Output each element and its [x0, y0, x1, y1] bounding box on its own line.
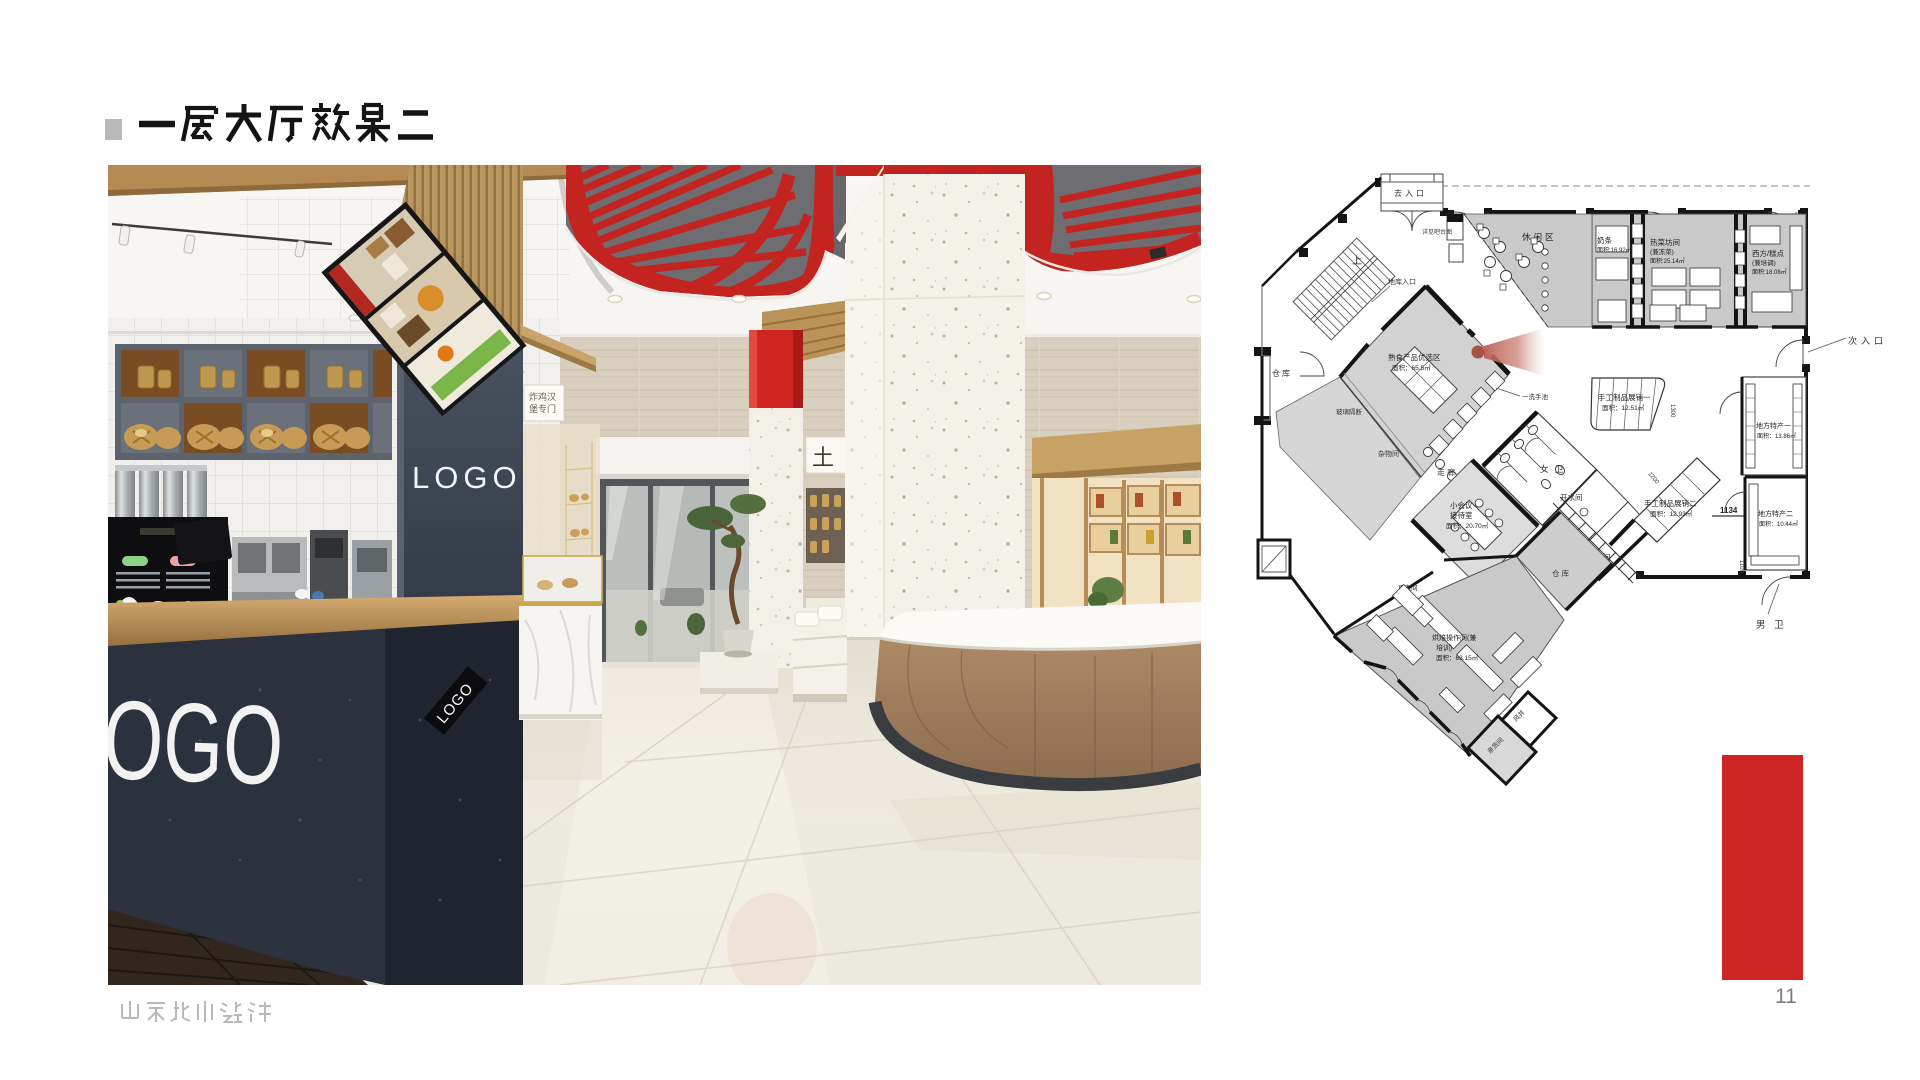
svg-text:OGO: OGO	[101, 677, 285, 808]
svg-text:土: 土	[812, 445, 834, 470]
svg-text:面积:18.08㎡: 面积:18.08㎡	[1752, 268, 1787, 276]
svg-text:次入口: 次入口	[1848, 335, 1887, 346]
svg-text:1300: 1300	[1669, 404, 1675, 418]
svg-text:1200: 1200	[1646, 471, 1660, 486]
svg-text:接待室: 接待室	[1450, 510, 1473, 520]
svg-text:面积：20.70㎡: 面积：20.70㎡	[1446, 521, 1489, 530]
svg-text:地方特产二: 地方特产二	[1758, 509, 1793, 518]
svg-text:炸鸡汉: 炸鸡汉	[529, 391, 556, 402]
svg-text:LOGO: LOGO	[412, 460, 522, 495]
svg-text:走廊: 走廊	[1437, 467, 1457, 477]
svg-text:上: 上	[1352, 255, 1362, 267]
svg-text:地库入口: 地库入口	[1388, 277, 1416, 286]
svg-text:熟食产品优选区: 熟食产品优选区	[1388, 352, 1441, 362]
svg-text:面积：12.93㎡: 面积：12.93㎡	[1650, 509, 1693, 518]
svg-text:玻璃隔断: 玻璃隔断	[1336, 407, 1363, 416]
svg-text:培训): 培训)	[1436, 643, 1452, 652]
svg-text:面积：12.51㎡: 面积：12.51㎡	[1602, 403, 1645, 412]
svg-text:(兼冻菜): (兼冻菜)	[1650, 247, 1674, 256]
svg-text:详见吧台图: 详见吧台图	[1422, 228, 1452, 236]
svg-text:西方/糕点: 西方/糕点	[1752, 248, 1785, 258]
svg-text:地方特产一: 地方特产一	[1756, 421, 1791, 430]
svg-text:面积：63.15㎡: 面积：63.15㎡	[1436, 653, 1479, 662]
svg-text:杂物间: 杂物间	[1378, 449, 1399, 458]
svg-text:奶条: 奶条	[1597, 235, 1613, 245]
svg-text:面积：13.86㎡: 面积：13.86㎡	[1757, 432, 1796, 440]
svg-text:堡专门: 堡专门	[529, 403, 556, 414]
svg-text:女 卫: 女 卫	[1540, 464, 1565, 474]
svg-text:面积:16.92㎡: 面积:16.92㎡	[1597, 246, 1632, 254]
svg-text:男 卫: 男 卫	[1756, 620, 1787, 631]
svg-text:1134: 1134	[1720, 506, 1738, 515]
svg-text:热菜坊间: 热菜坊间	[1650, 237, 1680, 247]
svg-text:(兼培调): (兼培调)	[1752, 258, 1776, 267]
svg-text:面积：65.5㎡: 面积：65.5㎡	[1392, 363, 1431, 372]
svg-text:仓库: 仓库	[1552, 568, 1571, 578]
svg-text:仓库: 仓库	[1272, 368, 1292, 378]
svg-text:小会议: 小会议	[1450, 500, 1473, 510]
svg-text:面积:25.14㎡: 面积:25.14㎡	[1650, 257, 1685, 265]
svg-text:1100: 1100	[1738, 560, 1744, 574]
svg-text:一洗手池: 一洗手池	[1522, 392, 1549, 401]
svg-text:手工制品展销一: 手工制品展销一	[1598, 392, 1651, 402]
svg-text:去入口: 去入口	[1394, 188, 1427, 198]
svg-text:休闲区: 休闲区	[1522, 232, 1557, 242]
svg-text:手工制品展销二: 手工制品展销二	[1644, 498, 1697, 508]
svg-text:面积：10.44㎡: 面积：10.44㎡	[1759, 520, 1798, 528]
svg-text:烘焙操作间(兼: 烘焙操作间(兼	[1432, 633, 1476, 642]
